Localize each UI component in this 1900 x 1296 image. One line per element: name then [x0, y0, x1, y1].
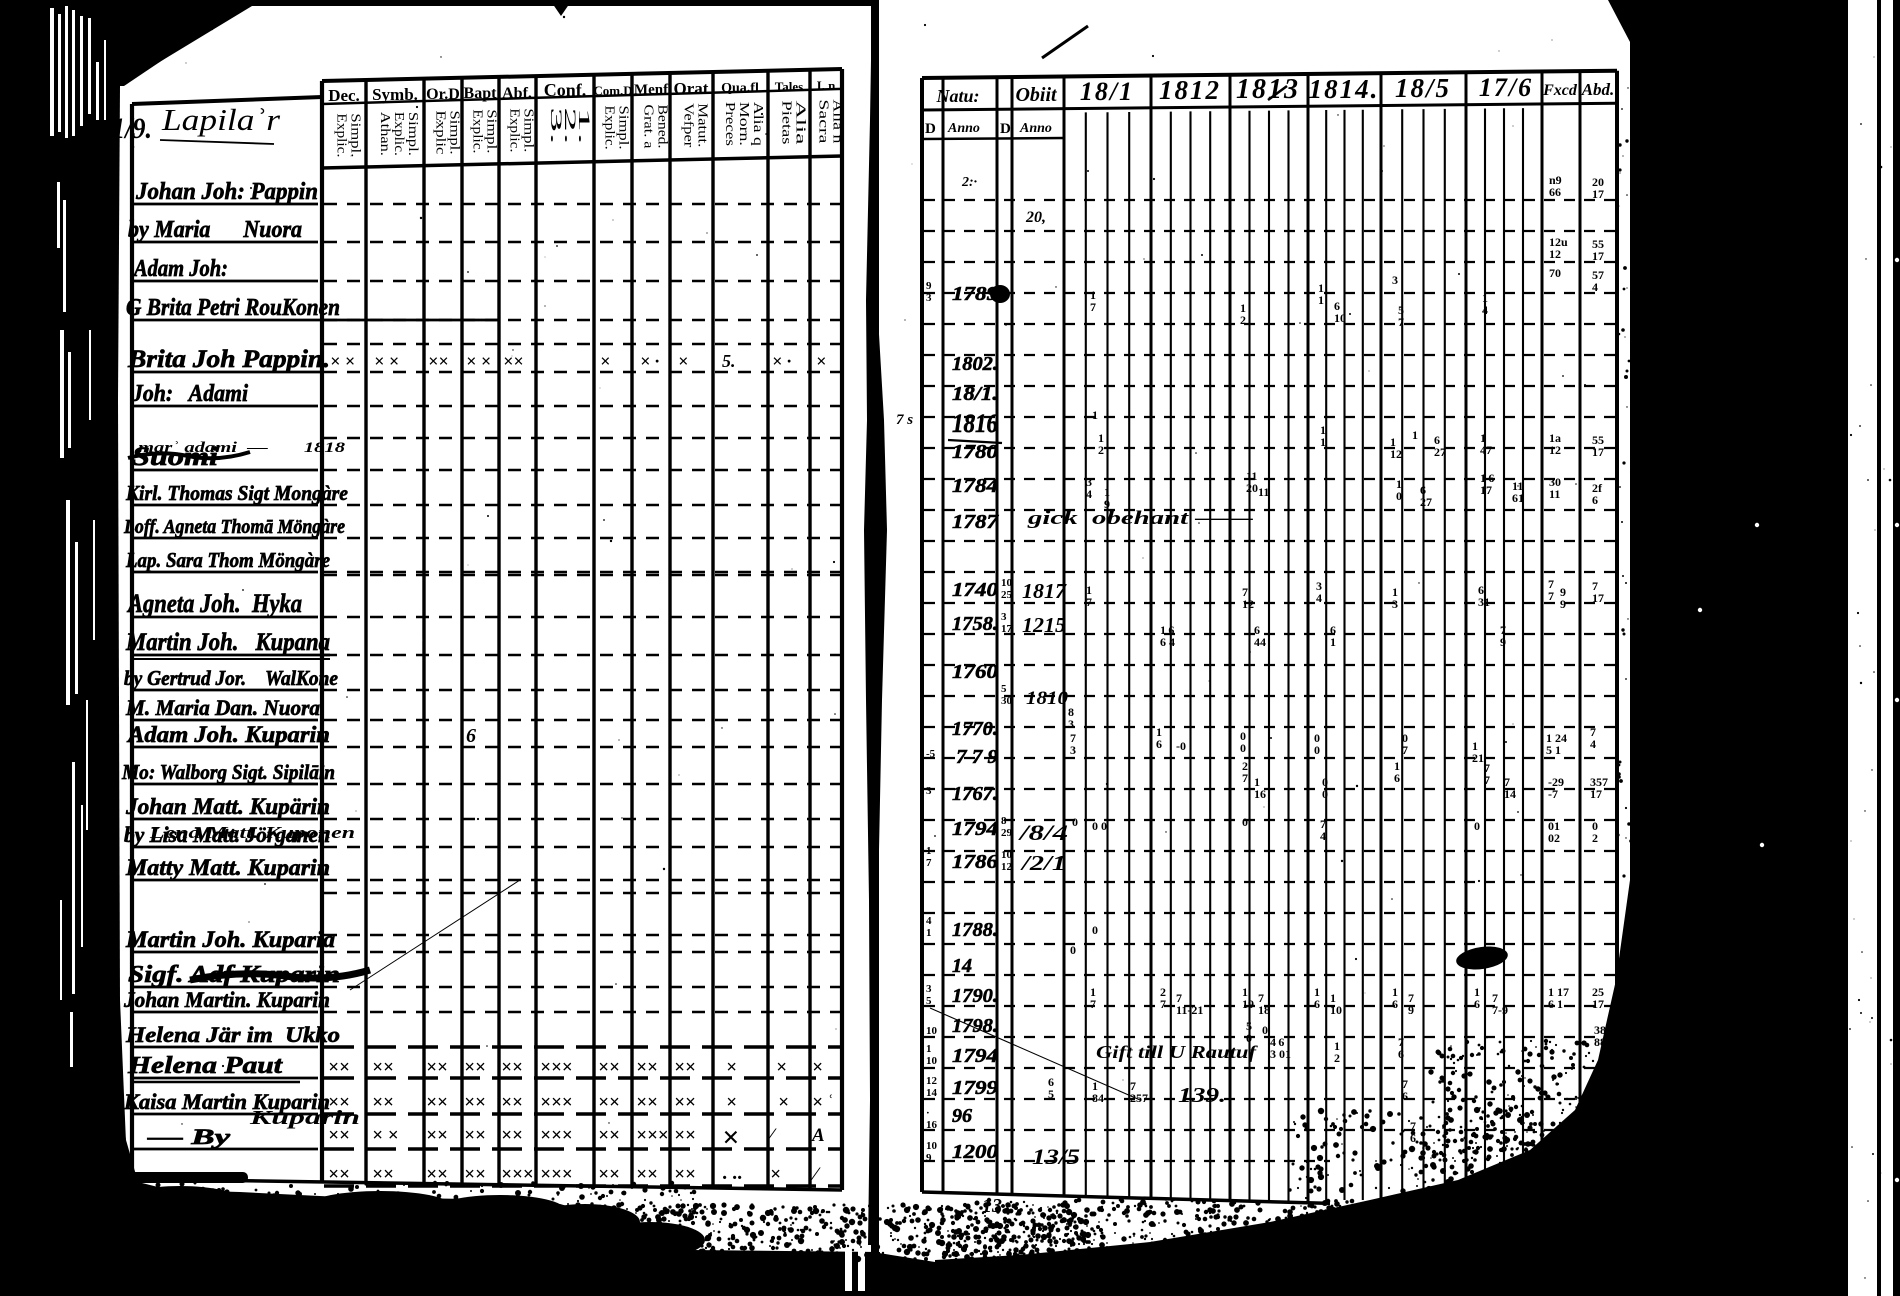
svg-text:0: 0	[1070, 943, 1076, 957]
svg-text:0: 0	[1262, 1023, 1268, 1037]
svg-text:××: ××	[464, 1125, 486, 1146]
svg-text:12: 12	[926, 1075, 938, 1087]
svg-text:by Gertrud Jor. WalKone: by Gertrud Jor. WalKone	[124, 666, 338, 690]
svg-text:Bapt: Bapt	[464, 85, 498, 102]
svg-text:Symb.: Symb.	[372, 85, 418, 104]
svg-text:D: D	[1000, 121, 1011, 137]
svg-text:1798.: 1798.	[952, 1015, 998, 1037]
svg-text:10: 10	[1001, 849, 1013, 861]
svg-text:9: 9	[1500, 635, 1506, 649]
svg-text:1790.: 1790.	[952, 985, 998, 1007]
svg-text:0: 0	[1092, 923, 1098, 937]
svg-text:9: 9	[1560, 597, 1566, 611]
svg-text:×: ×	[726, 1092, 737, 1113]
svg-text:A: A	[811, 1125, 825, 1146]
svg-text:Johan Joh: Pappin: Johan Joh: Pappin	[135, 179, 318, 205]
svg-text:Bened.: Bened.	[655, 104, 670, 148]
svg-text:×××: ×××	[540, 1092, 572, 1113]
svg-text:0: 0	[1314, 743, 1320, 757]
svg-text:Matut.: Matut.	[695, 103, 710, 147]
svg-text:5.: 5.	[722, 351, 736, 371]
svg-text:2: 2	[1592, 831, 1598, 845]
svg-text:1767.: 1767.	[952, 783, 998, 805]
svg-text:Gift till U Rautuf: Gift till U Rautuf	[1096, 1042, 1259, 1062]
svg-text:××: ××	[501, 1125, 523, 1146]
svg-text:1802.: 1802.	[952, 353, 998, 375]
svg-text:Menf: Menf	[634, 82, 669, 98]
svg-text:××: ××	[426, 1057, 448, 1078]
svg-text:××: ××	[464, 1164, 486, 1185]
svg-text:1787: 1787	[952, 511, 999, 533]
svg-text:1215: 1215	[1022, 613, 1066, 637]
svg-text:14: 14	[952, 955, 972, 977]
svg-text:××: ××	[328, 1092, 350, 1113]
svg-text:Martin Joh. Kuparia: Martin Joh. Kuparia	[125, 927, 335, 952]
svg-text:×××: ×××	[540, 1125, 572, 1146]
svg-text:7: 7	[1548, 589, 1554, 603]
svg-text:4: 4	[1086, 487, 1092, 501]
svg-text:3: 3	[926, 292, 932, 304]
svg-text:1813: 1813	[1236, 74, 1300, 105]
svg-text:21: 21	[1472, 751, 1484, 765]
svg-text:M. Maria Dan. Nuora: M. Maria Dan. Nuora	[125, 695, 320, 720]
svg-text:Simpl.: Simpl.	[521, 108, 536, 152]
svg-text:× ×: × ×	[374, 351, 399, 371]
svg-text:Vefper: Vefper	[681, 103, 696, 148]
svg-text:0: 0	[1242, 815, 1248, 829]
svg-text:3: 3	[926, 983, 932, 995]
svg-text:3: 3	[1392, 273, 1398, 287]
svg-text:17: 17	[1592, 249, 1604, 263]
svg-text:7 s: 7 s	[896, 412, 913, 428]
svg-text:27: 27	[1420, 495, 1432, 509]
svg-text:0 0: 0 0	[1092, 819, 1107, 833]
svg-text:2:·: 2:·	[961, 175, 977, 190]
svg-text:1: 1	[1318, 293, 1324, 307]
svg-text:7: 7	[1086, 595, 1092, 609]
svg-text:61: 61	[1512, 491, 1524, 505]
svg-text:Orat: Orat	[674, 79, 709, 98]
svg-text:17: 17	[1592, 187, 1604, 201]
svg-text:30: 30	[1001, 695, 1013, 707]
svg-text:Simpl.: Simpl.	[406, 112, 421, 156]
svg-text:6: 6	[1474, 997, 1480, 1011]
svg-text:××: ××	[674, 1057, 696, 1078]
svg-text:Helena Jär im Ukko: Helena Jär im Ukko	[125, 1022, 340, 1047]
svg-text:12: 12	[1001, 861, 1013, 873]
svg-text:8: 8	[1001, 815, 1007, 827]
svg-text:6 1: 6 1	[1548, 997, 1563, 1011]
svg-text:Joh: Adami: Joh: Adami	[131, 381, 248, 407]
svg-text:17: 17	[1001, 623, 1013, 635]
svg-text:Preces: Preces	[723, 102, 738, 146]
svg-text:3: 3	[1001, 611, 1007, 623]
svg-text:Com.D: Com.D	[593, 83, 632, 98]
svg-text:Explic.: Explic.	[507, 108, 522, 152]
svg-text:0: 0	[1246, 1031, 1252, 1045]
svg-text:××: ××	[674, 1125, 696, 1146]
svg-text:20: 20	[1246, 481, 1258, 495]
svg-text:× ʿ: × ʿ	[812, 1092, 833, 1113]
svg-text:××: ××	[501, 1092, 523, 1113]
svg-text:18/1.: 18/1.	[952, 383, 998, 405]
svg-text:×××: ×××	[636, 1125, 668, 1146]
svg-text:××: ××	[636, 1057, 658, 1078]
svg-text:×××: ×××	[501, 1164, 533, 1185]
svg-text:1814.: 1814.	[1309, 74, 1380, 104]
svg-text:7: 7	[926, 857, 932, 869]
svg-text:10: 10	[1330, 1003, 1342, 1017]
svg-text:7: 7	[1090, 997, 1096, 1011]
svg-text:1784: 1784	[952, 475, 998, 497]
svg-text:Abf.: Abf.	[502, 85, 532, 102]
svg-text:4: 4	[1482, 303, 1488, 317]
svg-text:Simpl.: Simpl.	[447, 110, 462, 154]
svg-text:5: 5	[1001, 683, 1007, 695]
svg-text:× ·: × ·	[772, 351, 791, 371]
svg-text:18/5: 18/5	[1395, 73, 1451, 103]
svg-text:×: ×	[600, 351, 610, 371]
svg-text:1: 1	[926, 927, 932, 939]
svg-text:7: 7	[1398, 315, 1404, 329]
svg-text:17: 17	[1590, 787, 1602, 801]
svg-text:0: 0	[1322, 787, 1328, 801]
svg-text:17: 17	[1592, 591, 1604, 605]
svg-text:1: 1	[926, 845, 932, 857]
svg-text:5: 5	[1048, 1087, 1054, 1101]
svg-text:Explic.: Explic.	[470, 109, 485, 153]
svg-text:— By: — By	[146, 1124, 230, 1149]
svg-text:3: 3	[926, 785, 932, 797]
svg-text:××: ××	[372, 1092, 394, 1113]
svg-text:Helena Paut: Helena Paut	[127, 1053, 284, 1079]
svg-text:×××: ×××	[540, 1164, 572, 1185]
svg-text:Kirl. Thomas Sigt Mongàre: Kirl. Thomas Sigt Mongàre	[125, 481, 348, 505]
svg-text:1799: 1799	[952, 1077, 998, 1099]
svg-text:1: 1	[1092, 408, 1098, 422]
svg-text:29: 29	[1001, 827, 1013, 839]
svg-text:×: ×	[726, 1057, 737, 1078]
svg-text:Brita Joh Pappin.: Brita Joh Pappin.	[127, 346, 330, 373]
svg-text:1786: 1786	[952, 851, 998, 873]
svg-text:25: 25	[1001, 589, 1013, 601]
svg-text:-0: -0	[1176, 739, 1186, 753]
svg-text:Alia: Alia	[793, 100, 808, 144]
svg-text:20,: 20,	[1025, 209, 1046, 226]
svg-text:× ×: × ×	[372, 1125, 398, 1146]
svg-text:×: ×	[778, 1092, 789, 1113]
svg-text:14: 14	[926, 1087, 938, 1099]
svg-text:×: ×	[816, 351, 826, 371]
svg-text:10: 10	[1334, 311, 1346, 325]
svg-text:12: 12	[1549, 247, 1561, 261]
svg-text:××: ××	[426, 1092, 448, 1113]
svg-text:Or.D: Or.D	[426, 86, 460, 103]
svg-text:7: 7	[1402, 743, 1408, 757]
svg-text:Obiit: Obiit	[1015, 84, 1058, 106]
svg-text:02: 02	[1548, 831, 1560, 845]
svg-text:Simpl.: Simpl.	[484, 109, 499, 153]
svg-text:9: 9	[1104, 497, 1110, 511]
svg-text:10: 10	[1001, 577, 1013, 589]
svg-text:6: 6	[1314, 997, 1320, 1011]
svg-text:1: 1	[926, 1043, 932, 1055]
svg-text:1780: 1780	[952, 441, 998, 463]
svg-text:1788.: 1788.	[952, 919, 998, 941]
svg-text:12: 12	[1242, 597, 1254, 611]
svg-text:9: 9	[926, 280, 932, 292]
svg-text:47: 47	[1480, 443, 1492, 457]
svg-text:Matty Matt. Kuparin: Matty Matt. Kuparin	[125, 855, 330, 880]
svg-text:Anno: Anno	[947, 121, 980, 136]
svg-text:1812: 1812	[1159, 75, 1221, 105]
svg-text:Agneta Joh. Hyka: Agneta Joh. Hyka	[126, 589, 302, 618]
svg-text:44: 44	[1254, 635, 1266, 649]
svg-text:1: 1	[1412, 428, 1418, 442]
svg-text:Grat. a: Grat. a	[641, 104, 656, 148]
svg-text:5 1: 5 1	[1546, 743, 1561, 757]
svg-text:Dec.: Dec.	[328, 86, 360, 105]
svg-text:G Brita Petri RouKonen: G Brita Petri RouKonen	[126, 295, 340, 321]
svg-text:Explic.: Explic.	[603, 106, 618, 150]
svg-text:Abd.: Abd.	[1581, 80, 1615, 99]
svg-text:1816: 1816	[952, 409, 998, 438]
svg-text:×: ×	[770, 1164, 781, 1185]
svg-text:Athan.: Athan.	[378, 112, 393, 156]
svg-text:27: 27	[1434, 445, 1446, 459]
svg-text:139.: 139.	[1178, 1083, 1226, 1107]
svg-text:17/6: 17/6	[1479, 73, 1533, 102]
svg-text:257: 257	[1130, 1091, 1148, 1105]
svg-text:××: ××	[598, 1164, 620, 1185]
svg-text:· ··: · ··	[722, 1167, 742, 1189]
svg-text:Anno: Anno	[1019, 121, 1052, 136]
svg-text:Simpl.: Simpl.	[348, 113, 363, 157]
svg-text:Martin Joh. Kupana: Martin Joh. Kupana	[125, 629, 330, 656]
svg-text:70: 70	[1549, 266, 1561, 280]
svg-text:××: ××	[674, 1164, 696, 1185]
svg-text:17: 17	[1592, 997, 1604, 1011]
svg-text:/2/1: /2/1	[1019, 851, 1066, 875]
svg-text:1794: 1794	[952, 818, 998, 840]
svg-text:1817: 1817	[1022, 579, 1068, 603]
svg-text:I. n: I. n	[817, 78, 837, 93]
svg-text:4: 4	[1590, 737, 1596, 751]
svg-text:××: ××	[464, 1092, 486, 1113]
svg-text:Explic: Explic	[433, 110, 448, 154]
svg-text:× ×: × ×	[466, 351, 491, 371]
svg-text:0: 0	[1072, 815, 1078, 829]
svg-text:4: 4	[1320, 829, 1326, 843]
svg-text:Simpl.: Simpl.	[617, 106, 632, 150]
svg-text:3: 3	[1392, 597, 1398, 611]
svg-text:Qua.fl: Qua.fl	[721, 81, 759, 96]
svg-text:1: 1	[1330, 635, 1336, 649]
svg-text:by Lisa Matt. Jörganen: by Lisa Matt. Jörganen	[124, 822, 330, 847]
svg-text:31: 31	[1478, 595, 1490, 609]
svg-text:Adam Joh. Kuparin: Adam Joh. Kuparin	[126, 722, 330, 747]
svg-text:7-9: 7-9	[1492, 1003, 1508, 1017]
svg-text:××: ××	[598, 1092, 620, 1113]
svg-text:19: 19	[1242, 997, 1254, 1011]
svg-text:18: 18	[1258, 1003, 1270, 1017]
svg-text:Loff. Agneta Thomā Möngàre: Loff. Agneta Thomā Möngàre	[123, 516, 345, 538]
svg-text:××: ××	[328, 1057, 350, 1078]
svg-text:××: ××	[328, 1125, 350, 1146]
svg-text:Alia q: Alia q	[751, 102, 766, 146]
svg-text:4: 4	[1316, 591, 1322, 605]
svg-text:7 7 9: 7 7 9	[952, 746, 998, 768]
svg-text:66: 66	[1549, 185, 1561, 199]
svg-text:3: 3	[1070, 743, 1076, 757]
svg-text:10: 10	[926, 1140, 938, 1152]
svg-text:××: ××	[501, 1057, 523, 1078]
svg-text:××: ××	[636, 1092, 658, 1113]
svg-text:16: 16	[1254, 787, 1266, 801]
svg-text:××: ××	[598, 1125, 620, 1146]
svg-text:×: ×	[678, 351, 688, 371]
svg-text:7: 7	[1484, 773, 1490, 787]
svg-text:1.: 1.	[575, 107, 592, 145]
svg-text:10: 10	[926, 1025, 938, 1037]
svg-text:××: ××	[636, 1164, 658, 1185]
svg-text:Adam Joh:: Adam Joh:	[132, 256, 228, 282]
svg-text:6: 6	[1156, 737, 1162, 751]
svg-text:2: 2	[1240, 313, 1246, 327]
svg-text:0: 0	[1240, 741, 1246, 755]
svg-text:12: 12	[1549, 443, 1561, 457]
svg-text:13/5: 13/5	[1032, 1144, 1080, 1169]
svg-text:1: 1	[1320, 435, 1326, 449]
svg-text:××: ××	[464, 1057, 486, 1078]
svg-text:Fxcd: Fxcd	[1542, 82, 1578, 99]
svg-text:-5: -5	[926, 748, 936, 760]
svg-text:3 01: 3 01	[1270, 1047, 1291, 1061]
svg-text:14: 14	[1504, 787, 1516, 801]
svg-text:17: 17	[1480, 483, 1492, 497]
svg-text:6: 6	[1398, 1047, 1404, 1061]
svg-text:Explic.: Explic.	[334, 113, 349, 157]
svg-text:gick obehant ——: gick obehant ——	[1026, 508, 1253, 529]
svg-text:5: 5	[926, 995, 932, 1007]
svg-text:6: 6	[1592, 493, 1598, 507]
svg-text:Morn.: Morn.	[737, 102, 752, 146]
svg-text:××: ××	[372, 1057, 394, 1078]
svg-text:9: 9	[926, 1152, 932, 1164]
svg-text:1770.: 1770.	[952, 718, 998, 740]
svg-text:1/9.: 1/9.	[112, 112, 152, 145]
svg-text:-7: -7	[1548, 787, 1558, 801]
svg-text:4: 4	[1592, 280, 1598, 294]
svg-text:1760: 1760	[952, 661, 998, 683]
svg-text:××: ××	[674, 1092, 696, 1113]
svg-text:Tales: Tales	[775, 79, 803, 94]
svg-text:Pietas: Pietas	[779, 100, 794, 144]
svg-text:Johan Martin. Kuparin: Johan Martin. Kuparin	[123, 987, 330, 1012]
svg-text:·: ·	[926, 1107, 930, 1119]
svg-text:××: ××	[328, 1164, 350, 1185]
svg-text:Johan Matt. Kupärin: Johan Matt. Kupärin	[125, 794, 330, 819]
svg-text:Natu:: Natu:	[935, 86, 979, 106]
svg-text:D: D	[925, 121, 936, 137]
svg-text:Explic.: Explic.	[392, 112, 407, 156]
svg-text:×: ×	[812, 1057, 823, 1078]
svg-text:6: 6	[466, 725, 476, 747]
svg-text:12: 12	[1390, 447, 1402, 461]
svg-text:96: 96	[952, 1105, 972, 1127]
svg-text:by Maria Nuora: by Maria Nuora	[128, 217, 302, 243]
svg-text:4: 4	[926, 915, 932, 927]
svg-text:16: 16	[926, 1119, 938, 1131]
svg-text:×: ×	[776, 1057, 787, 1078]
svg-text:Lapilaʾr: Lapilaʾr	[161, 102, 281, 137]
svg-text:6: 6	[1392, 997, 1398, 1011]
svg-text:× ×: × ×	[330, 351, 355, 371]
svg-text:2: 2	[1334, 1051, 1340, 1065]
svg-text:10: 10	[926, 1055, 938, 1067]
svg-text:11: 11	[1258, 485, 1269, 499]
svg-text:Mo: Walborg Sigt. Sipilāin: Mo: Walborg Sigt. Sipilāin	[121, 760, 335, 784]
svg-text:3: 3	[1068, 717, 1074, 731]
svg-text:6: 6	[1394, 771, 1400, 785]
svg-text:7: 7	[1160, 997, 1166, 1011]
svg-text:××: ××	[428, 351, 449, 371]
svg-text:××: ××	[426, 1125, 448, 1146]
svg-text:84: 84	[1092, 1091, 1104, 1105]
svg-text:0: 0	[1396, 489, 1402, 503]
svg-text:Lap. Sara Thom Möngàre: Lap. Sara Thom Möngàre	[125, 548, 330, 572]
svg-text:7: 7	[1242, 771, 1248, 785]
svg-text:Sacra: Sacra	[816, 99, 831, 143]
svg-text:11-21: 11-21	[1176, 1003, 1203, 1017]
svg-text:/8/4: /8/4	[1017, 820, 1068, 845]
svg-text:2: 2	[1098, 443, 1104, 457]
svg-text:9: 9	[1408, 1003, 1414, 1017]
svg-text:Conf.: Conf.	[544, 80, 587, 100]
svg-text:×××: ×××	[540, 1057, 572, 1078]
svg-text:18/1: 18/1	[1080, 77, 1134, 106]
svg-text:6 4: 6 4	[1160, 635, 1175, 649]
svg-text:××: ××	[372, 1164, 394, 1185]
svg-text:×: ×	[722, 1121, 739, 1154]
svg-text:1794: 1794	[952, 1045, 998, 1067]
svg-text:6: 6	[1402, 1089, 1408, 1103]
svg-text:1200: 1200	[952, 1141, 998, 1163]
svg-text:1810: 1810	[1026, 688, 1069, 709]
svg-text:××: ××	[503, 351, 524, 371]
svg-text:1758.: 1758.	[952, 613, 998, 635]
svg-text:××: ××	[598, 1057, 620, 1078]
svg-text:0: 0	[1474, 819, 1480, 833]
svg-text:Alia n: Alia n	[830, 99, 845, 143]
svg-text:17: 17	[1592, 445, 1604, 459]
svg-text:1740: 1740	[952, 579, 998, 601]
svg-text:7: 7	[1090, 300, 1096, 314]
svg-text:× ·: × ·	[640, 351, 659, 371]
svg-text:11: 11	[1549, 487, 1560, 501]
